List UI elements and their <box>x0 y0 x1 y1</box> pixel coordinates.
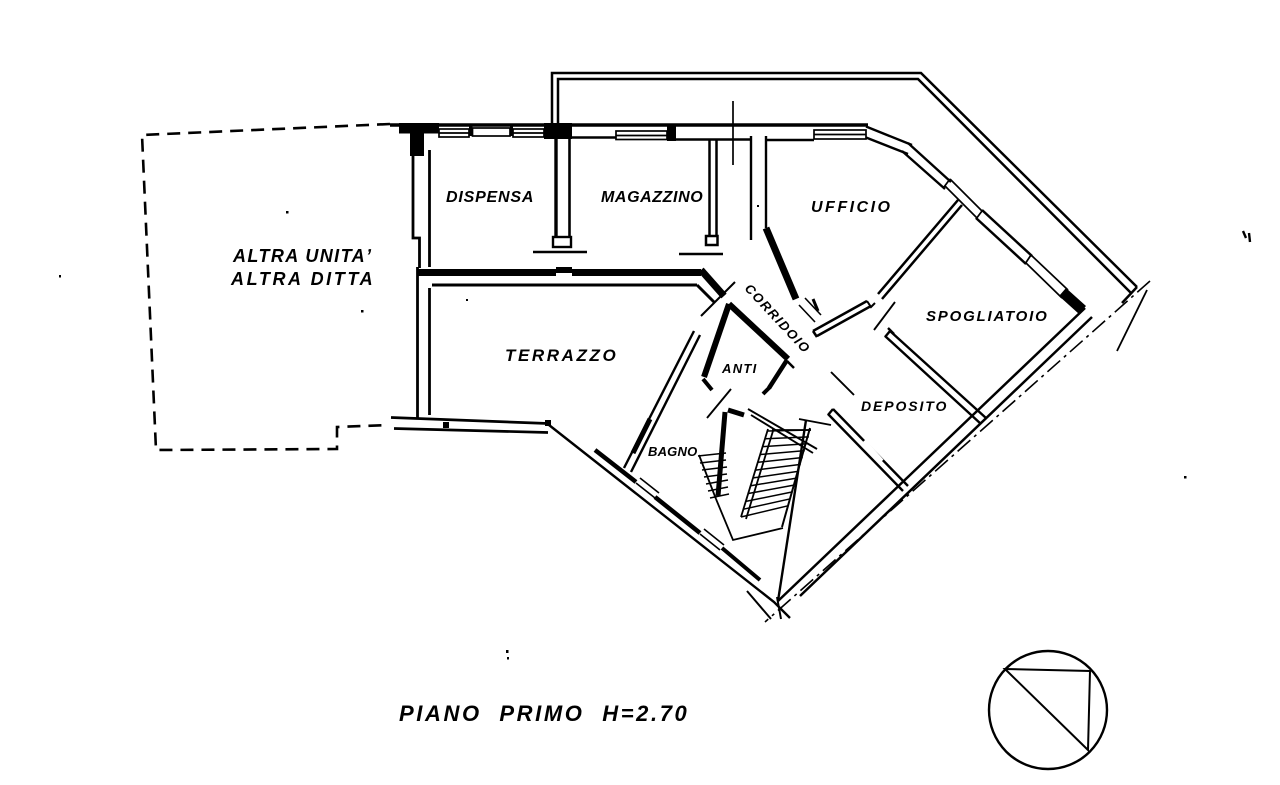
svg-text:TERRAZZO: TERRAZZO <box>505 346 618 365</box>
svg-text:PIANO PRIMO H=2.70: PIANO PRIMO H=2.70 <box>399 701 689 726</box>
svg-text:BAGNO: BAGNO <box>648 444 697 459</box>
svg-text:DEPOSITO: DEPOSITO <box>861 398 948 414</box>
svg-text:UFFICIO: UFFICIO <box>811 199 893 216</box>
svg-text:ALTRA UNITAʼ: ALTRA UNITAʼ <box>232 246 372 266</box>
svg-text:ANTI: ANTI <box>721 361 758 376</box>
svg-text:SPOGLIATOIO: SPOGLIATOIO <box>926 308 1049 325</box>
svg-text:MAGAZZINO: MAGAZZINO <box>601 189 703 206</box>
svg-text:ALTRA DITTA: ALTRA DITTA <box>230 269 375 289</box>
svg-text:DISPENSA: DISPENSA <box>446 189 534 206</box>
